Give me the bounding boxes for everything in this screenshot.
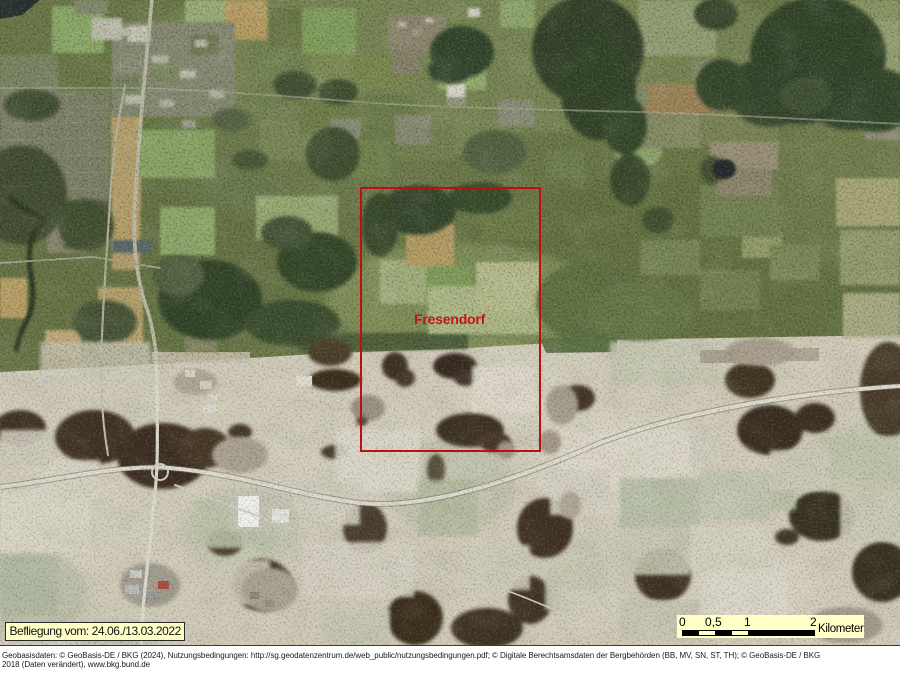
svg-text:Fresendorf: Fresendorf bbox=[414, 311, 486, 327]
